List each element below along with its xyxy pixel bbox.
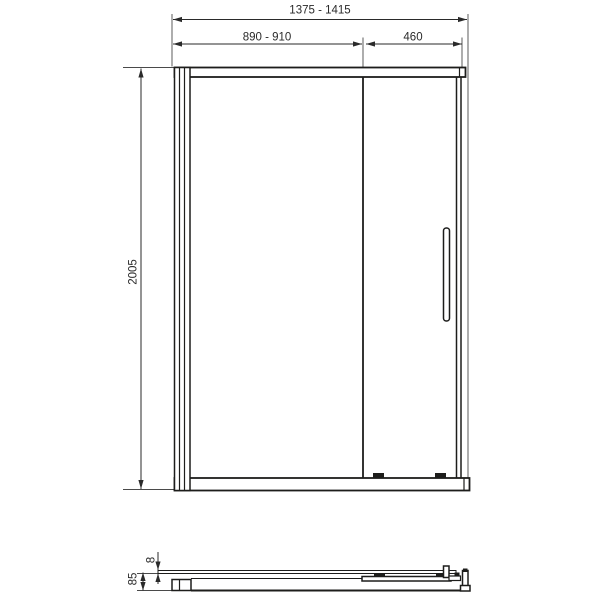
dim-overall-width-label: 1375 - 1415 <box>289 5 350 17</box>
dim-fixed-panel-width: 460 <box>366 32 462 47</box>
dim-glass-thickness-label: 8 <box>146 557 158 563</box>
door-handle <box>444 228 450 321</box>
sliding-panel-section <box>362 577 451 582</box>
arrow-right-icon <box>453 41 462 46</box>
arrow-down-icon <box>140 582 145 591</box>
dim-overall-width: 1375 - 1415 <box>173 5 467 23</box>
dim-sliding-door-width-label: 890 - 910 <box>243 32 292 44</box>
technical-drawing: 1375 - 1415 890 - 910 460 2005 <box>0 0 600 600</box>
bottom-rail <box>175 478 470 491</box>
front-view: 1375 - 1415 890 - 910 460 2005 <box>123 5 470 491</box>
arrow-left-icon <box>173 17 182 22</box>
bottom-guide-clip-left <box>373 473 384 478</box>
arrow-up-icon <box>155 574 160 583</box>
arrow-up-icon <box>138 69 143 78</box>
dim-height-label: 2005 <box>128 259 140 285</box>
bottom-guide-clip-right <box>435 473 446 478</box>
section-view: 8 85 <box>128 552 470 591</box>
section-profile <box>158 566 470 591</box>
fixed-glass-right-edge <box>457 77 462 478</box>
arrow-left-icon <box>366 41 375 46</box>
wall-profile-right-section <box>461 569 471 592</box>
dim-profile-depth-label: 85 <box>128 573 140 586</box>
fixed-glass-panel-section <box>158 571 456 574</box>
dim-fixed-panel-width-label: 460 <box>403 32 422 44</box>
dim-sliding-door-width: 890 - 910 <box>173 32 362 47</box>
arrow-left-icon <box>173 41 182 46</box>
guide-clip-left-section <box>374 574 385 578</box>
top-rail <box>175 68 466 78</box>
dim-glass-thickness: 8 <box>146 552 161 584</box>
wall-profile-left-section <box>172 580 191 591</box>
arrow-right-icon <box>353 41 362 46</box>
door-frame <box>175 68 470 491</box>
technical-drawing-page: 1375 - 1415 890 - 910 460 2005 <box>0 0 600 600</box>
arrow-right-icon <box>458 17 467 22</box>
dim-height: 2005 <box>128 69 144 490</box>
arrow-down-icon <box>138 480 143 489</box>
wall-profile-left <box>175 68 191 491</box>
